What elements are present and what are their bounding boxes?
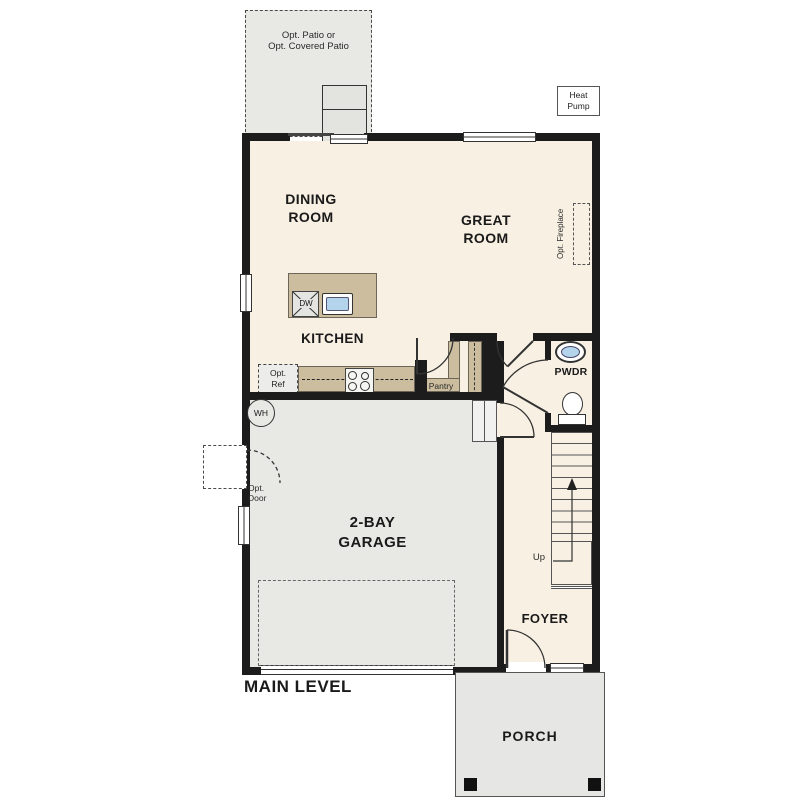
wall-right — [592, 133, 600, 672]
wall-kitchen-garage — [250, 392, 504, 400]
cased-opening-dashline — [474, 343, 475, 395]
opt-door-label: Opt. Door — [248, 483, 284, 503]
window-garage — [238, 506, 250, 545]
wall-top-recess — [288, 133, 334, 136]
island-sink-basin — [326, 297, 349, 311]
pantry-label: Pantry — [420, 381, 462, 391]
opt-ref-box: Opt. Ref — [258, 364, 298, 394]
opt-fireplace-box — [573, 203, 590, 265]
porch-post-left — [464, 778, 477, 791]
opt-door-pad — [203, 445, 247, 489]
staircase — [551, 432, 592, 541]
pantry-shelf-side — [448, 341, 460, 381]
pwdr-label: PWDR — [548, 366, 594, 380]
wall-mud — [482, 333, 497, 400]
wall-pwdr-bottom — [545, 425, 600, 432]
foyer-label: FOYER — [500, 611, 590, 628]
wall-hall-upper — [497, 341, 504, 403]
wall-hall-pwdr — [533, 333, 592, 341]
cased-opening-strip — [468, 341, 482, 397]
stair-bottom-edge — [551, 586, 592, 589]
burner-1 — [348, 371, 357, 380]
porch-label: PORCH — [480, 727, 580, 745]
wall-pwdr-left-top — [545, 333, 551, 360]
water-heater: WH — [247, 399, 275, 427]
window-dining — [240, 274, 252, 312]
dining-room-label: DINING ROOM — [268, 190, 354, 226]
dishwasher-label: DW — [294, 299, 318, 309]
patio-fireplace-structure — [322, 85, 367, 110]
burner-3 — [348, 382, 357, 391]
garage-label: 2-BAY GARAGE — [320, 513, 425, 552]
patio-slider-door — [330, 134, 368, 144]
toilet-bowl — [562, 392, 583, 416]
wall-hall-lower — [497, 437, 504, 664]
pwdr-sink-basin — [561, 346, 580, 358]
wall-pantry-stub — [415, 360, 427, 400]
burner-4 — [360, 381, 370, 391]
wall-garage-bottom-left — [242, 667, 262, 675]
garage-door — [261, 665, 453, 675]
plan-title: MAIN LEVEL — [244, 676, 444, 698]
stairs-up-label: Up — [528, 552, 550, 563]
heat-pump-box: Heat Pump — [557, 86, 600, 116]
toilet-tank — [558, 414, 586, 425]
opt-patio-label: Opt. Patio or Opt. Covered Patio — [247, 30, 370, 53]
floor-plan: Opt. Patio or Opt. Covered Patio Heat Pu… — [0, 0, 810, 810]
kitchen-label: KITCHEN — [290, 330, 375, 348]
burner-2 — [361, 372, 369, 380]
porch-post-right — [588, 778, 601, 791]
garage-door-ceiling-line — [258, 580, 455, 666]
stair-landing — [551, 541, 592, 585]
opt-fireplace-label: Opt. Fireplace — [556, 200, 571, 268]
window-great-room — [463, 132, 536, 142]
great-room-label: GREAT ROOM — [438, 211, 534, 247]
garage-entry-step-2 — [484, 400, 497, 442]
